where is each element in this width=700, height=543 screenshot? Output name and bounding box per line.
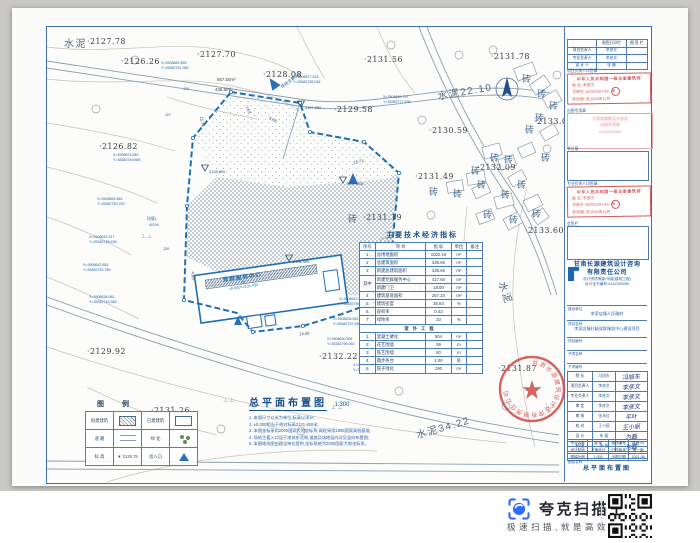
indicator-cell: 257.10 — [426, 291, 451, 299]
coordinate-callout: X=3908674.840Y=35382749.865 — [113, 153, 140, 162]
legend-symbol-hatch — [114, 412, 142, 430]
spot-elevation: ·2132.22 — [319, 352, 358, 361]
titleblock-cell: 李彦文 — [597, 55, 626, 63]
indicator-cell — [467, 300, 483, 308]
spot-elevation: ·2131.78 — [491, 52, 530, 61]
indicator-cell: 总用地面积 — [375, 251, 426, 259]
indicator-cell: 1 — [360, 332, 376, 340]
titleblock-cell — [626, 55, 647, 63]
handwritten-signature: 李彦文 — [622, 381, 641, 391]
indicator-cell: 26.93 — [426, 300, 451, 308]
elevation-marker-label: 2129.825 — [347, 181, 363, 186]
signature-cell: 审 定 — [568, 402, 593, 412]
indicator-cell: % — [451, 316, 467, 324]
area-label: 436.9m² — [215, 87, 231, 92]
indicator-cell — [467, 308, 483, 316]
indicator-cell — [467, 291, 483, 299]
meta-cell: 图档编号 — [608, 440, 628, 447]
indicator-cell: m — [451, 340, 467, 348]
meta-cell: 设计阶段 — [568, 447, 588, 454]
indicator-cell: 4 — [360, 357, 376, 365]
indicator-cell: m² — [451, 251, 467, 259]
indicator-cell: 4 — [360, 291, 376, 299]
signature-cell: 专业负责人 — [568, 392, 593, 402]
elevation-marker-label: 2127.850 — [305, 105, 321, 110]
company-seal: 甘肃长源建筑设计咨询有限责任公司 — [496, 353, 568, 430]
indicator-cell: 处 — [451, 357, 467, 365]
indicator-cell: 室外工程 — [360, 324, 483, 332]
grass-symbol: ⊥⊥ — [223, 397, 235, 404]
indicator-cell: 院子绿化 — [375, 365, 426, 373]
indicator-cell — [451, 308, 467, 316]
legend-symbol-rect — [170, 412, 198, 430]
titleblock-header-cell: 图签打印栏 — [597, 40, 626, 48]
handwritten-signature: 冯旭东 — [622, 371, 641, 381]
faint-stamp-line: A162005085 — [570, 129, 650, 135]
brick-label: 砖 — [348, 212, 357, 225]
plan-title-block: 总平面布置图 1:300 1. 本图尺寸以米为单位,标高以米计;2. ±0.00… — [249, 393, 444, 448]
point-code-label: 挡墙1 — [147, 217, 157, 222]
legend-label: 绿 化 — [142, 430, 170, 448]
spot-elevation: ·2126.26 — [121, 57, 160, 66]
signature-cell: 李彦文 — [616, 402, 648, 412]
legend-symbol-entry — [170, 448, 198, 466]
indicator-cell: 0.43 — [426, 308, 451, 316]
title-block: 图签打印栏图 签 栏项目负责人李彦文专业负责人李彦文设 计 人张 巍 项目负责人… — [564, 27, 651, 482]
indicator-cell — [467, 275, 483, 283]
titleblock-cell — [626, 47, 647, 55]
qr-code — [608, 494, 652, 543]
titleblock-top-table: 图签打印栏图 签 栏项目负责人李彦文专业负责人李彦文设 计 人张 巍 — [567, 39, 648, 70]
drawing-sheet: 场地主要入口 党群服务中心 1F ±0.000=2131.450 ·2127.7… — [12, 8, 688, 486]
indicators-title: 主要技术经济指标 — [359, 230, 485, 240]
coordinate-callout: X=3908642.851Y=35382743.789 — [83, 263, 110, 272]
point-code-label: 4/S04 — [149, 223, 159, 227]
signature-cell: 院 长 — [568, 372, 593, 382]
meta-cell: 归档版本 — [608, 447, 628, 454]
indicator-cell: 混凝土硬化 — [375, 332, 426, 340]
field-3: 项目编号 — [567, 337, 647, 350]
footer-divider — [601, 497, 602, 533]
company-name-2: 有限责任公司 — [567, 269, 647, 277]
indicator-cell: m² — [451, 332, 467, 340]
coordinate-callout: X=3908638.081Y=35382743.366 — [89, 295, 116, 304]
indicator-cell: 7 — [360, 316, 376, 324]
indicator-cell: m² — [451, 275, 467, 283]
signature-cell: 王小丽 — [593, 422, 616, 432]
indicator-cell — [467, 267, 483, 275]
legend-symbol-elev: ▼ 2128.75 — [114, 448, 142, 466]
stamp-line: 中华人民共和国一级注册建筑师 — [569, 75, 649, 82]
countersign-box — [567, 226, 649, 260]
meta-cell: 建施-01 — [629, 440, 648, 447]
indicator-cell: 序号 — [360, 243, 376, 251]
brick-label: 砖 — [483, 208, 492, 221]
indicator-cell: m² — [451, 365, 467, 373]
signature-cell: 李彦文 — [593, 382, 616, 392]
handwritten-signature: 王小丽 — [622, 421, 641, 431]
signature-cell: 校 对 — [568, 422, 593, 432]
spot-elevation: ·2130.59 — [429, 126, 468, 135]
mini-seal-icon: 章 — [611, 200, 620, 209]
point-code-label: J26 — [163, 247, 169, 251]
indicator-cell: 60 — [426, 349, 451, 357]
spot-elevation: ·2133.60 — [525, 226, 564, 235]
coordinate-callout: X=3908630.654Y=35382796.062 — [327, 337, 354, 346]
plan-note: 5. 本图地形图由建设单位提供,坐标系统为2000国家大地坐标系。 — [249, 441, 444, 448]
brick-label: 砖 — [517, 178, 526, 191]
legend-label: 标 高 — [86, 448, 114, 466]
signature-cell: 张永红 — [593, 412, 616, 422]
indicator-cell: m² — [451, 267, 467, 275]
handwritten-signature: 平叶 — [625, 412, 638, 422]
field-label: 子项编号 — [568, 365, 582, 370]
brick-label: 砖 — [504, 153, 513, 166]
signature-cell: 冯旭东 — [593, 372, 616, 382]
dimension-label: 14.49 — [299, 331, 310, 337]
titleblock-header-cell: 图 签 栏 — [626, 40, 647, 48]
indicator-cell: 其中 — [360, 275, 376, 291]
signature-cell: 李彦文 — [616, 392, 648, 402]
indicator-cell: 5 — [360, 365, 376, 373]
meta-cell: 第一版 — [629, 447, 648, 454]
area-label: 567.50m² — [217, 77, 236, 82]
indicator-cell: 建筑密度 — [375, 300, 426, 308]
legend-label: 道 路 — [86, 430, 114, 448]
indicator-cell: 435.60 — [426, 259, 451, 267]
guard-house-2 — [265, 315, 276, 326]
indicator-cell: 18.00 — [426, 283, 451, 291]
unit-stamp-box — [567, 151, 649, 181]
meta-cell: 方案设计 — [588, 447, 608, 454]
indicator-cell: 417.60 — [426, 275, 451, 283]
field-1: 建设单位李家店镇人民政府 — [567, 305, 647, 320]
signature-cell: 李彦文 — [616, 382, 648, 392]
legend-block: 图 例 拟建建筑已建建筑道 路绿 化标 高▼ 2128.75总入口 — [85, 399, 198, 466]
field-4: 子项名称 — [567, 350, 647, 363]
coordinate-callout: X=3908677.215Y=35382766.044 — [293, 75, 320, 84]
brick-label: 砖 — [509, 213, 518, 226]
signature-cell: 审 核 — [568, 412, 593, 422]
sheet-name-row: 图纸名称 总平面布置图 — [567, 458, 647, 472]
elevation-marker-label: 2128.800 — [209, 169, 225, 174]
sheet-name-label: 图纸名称 — [568, 460, 582, 465]
building-annex — [323, 270, 340, 292]
signature-cell: 王小丽 — [616, 422, 648, 432]
brick-label: 砖 — [525, 123, 534, 136]
indicator-cell — [467, 349, 483, 357]
indicator-cell: 新建总建筑面积 — [375, 267, 426, 275]
titleblock-cell: 项目负责人 — [568, 47, 597, 55]
indicator-cell: 6 — [360, 308, 376, 316]
indicator-cell: 3 — [360, 349, 376, 357]
brick-label: 砖 — [501, 188, 510, 201]
spot-elevation: ·2131.56 — [364, 55, 403, 64]
brick-label: 砖 — [477, 178, 486, 191]
spot-elevation: ·2129.58 — [334, 105, 373, 114]
handwritten-signature: 李彦文 — [622, 401, 641, 411]
indicator-cell — [467, 316, 483, 324]
legend-label: 已建建筑 — [142, 412, 170, 430]
plan-scale: 1:300 — [334, 402, 349, 408]
indicator-cell: 花艺围墙 — [375, 340, 426, 348]
coordinate-callout: X=3908652.882Y=35382750.750 — [97, 197, 124, 206]
legend-label: 总入口 — [142, 448, 170, 466]
coordinate-callout: X=3908669.757Y=35382777.536 — [383, 95, 410, 104]
stamp-line: 有效期: 至2026年11月 — [569, 208, 649, 214]
plot-stamp-box: 甘肃省勘察设计协会出图专用章A162005085 — [567, 113, 653, 149]
meta-cell: 建 筑 — [588, 440, 608, 447]
company-cert: 设计证书编号:A162005085 — [567, 282, 647, 288]
indicator-cell: 435.60 — [426, 267, 451, 275]
spot-elevation: ·2131.49 — [415, 172, 454, 181]
indicator-cell: 绿地率 — [375, 316, 426, 324]
indicator-cell — [467, 357, 483, 365]
meta-cell: 专业名称 — [568, 440, 588, 447]
spot-elevation: ·2129.92 — [87, 347, 126, 356]
indicator-cell: 1022.19 — [426, 251, 451, 259]
handwritten-signature: 李彦文 — [622, 391, 641, 401]
brick-label: 砖 — [532, 207, 541, 220]
indicator-cell — [467, 332, 483, 340]
indicator-cell — [467, 259, 483, 267]
point-code-label: J20 — [183, 87, 189, 91]
indicator-cell: 新建党群服务中心 — [375, 275, 426, 283]
coordinate-callout: X=3908682.855Y=35382751.380 — [161, 61, 188, 70]
indicators-table: 序号项 目指 标单位备注1总用地面积1022.19m²2总建筑面积435.60m… — [359, 242, 483, 374]
architect-stamp-2: 中华人民共和国一级注册建筑师姓 名: 李彦文注册号: 6200229-016章有… — [567, 185, 651, 217]
point-code-label: J27 — [165, 113, 171, 117]
indicator-cell: 3 — [360, 267, 376, 275]
elevation-marker-label: 2131.450 — [293, 259, 309, 264]
indicator-cell: m² — [451, 291, 467, 299]
drawing-frame: 场地主要入口 党群服务中心 1F ±0.000=2131.450 ·2127.7… — [46, 26, 652, 484]
titleblock-cell: 专业负责人 — [568, 55, 597, 63]
signature-cell: 平叶 — [616, 412, 648, 422]
architect-stamp-1: 中华人民共和国一级注册建筑师姓 名: 李彦文注册号: 6200229-016章有… — [567, 72, 651, 104]
indicator-cell: 1 — [360, 251, 376, 259]
brick-label: 砖 — [522, 72, 531, 85]
field-label: 项目名称 — [568, 322, 582, 327]
indicator-cell: 单位 — [451, 243, 467, 251]
stamp-line: 有效期: 至2026年11月 — [569, 95, 649, 101]
indicator-cell: 504 — [426, 332, 451, 340]
indicator-cell: 踏步条台 — [375, 357, 426, 365]
brick-label: 砖 — [429, 185, 438, 198]
indicator-cell: % — [451, 300, 467, 308]
legend-label: 拟建建筑 — [86, 412, 114, 430]
field-label: 子项名称 — [568, 352, 582, 357]
spot-elevation: ·2126.82 — [99, 142, 138, 151]
brick-label: 砖 — [535, 111, 544, 124]
mini-seal-icon: 章 — [611, 87, 620, 96]
indicator-cell: 铁艺围墙 — [375, 349, 426, 357]
brick-label: 砖 — [471, 164, 480, 177]
indicator-cell: 指 标 — [426, 243, 451, 251]
grass-symbol: ⊥⊥ — [141, 233, 153, 240]
dimension-label: 4.09 — [190, 271, 196, 280]
indicator-cell: m — [451, 349, 467, 357]
scanner-footer: 夸克扫描王 极速扫描,就是高效 — [0, 491, 700, 540]
indicator-cell: 总建筑面积 — [375, 259, 426, 267]
indicator-cell: 容积率 — [375, 308, 426, 316]
surface-label: 水泥 — [64, 35, 87, 50]
indicator-cell: 项 目 — [375, 243, 426, 251]
indicator-cell: 190 — [426, 365, 451, 373]
indicator-cell — [467, 365, 483, 373]
spot-elevation: ·2127.78 — [87, 37, 126, 46]
indicator-cell: 新建门卫 — [375, 283, 426, 291]
signature-cell: 冯旭东 — [616, 372, 648, 382]
coordinate-callout: X=3908643.217Y=35382748.638 — [89, 235, 116, 244]
indicator-cell: 2 — [360, 340, 376, 348]
indicator-cell: 33 — [426, 316, 451, 324]
legend-symbol-green — [170, 430, 198, 448]
indicator-cell — [467, 251, 483, 259]
signature-cell: 李彦文 — [593, 402, 616, 412]
indicator-cell: m² — [451, 259, 467, 267]
spot-elevation: ·2127.70 — [197, 50, 236, 59]
brick-label: 砖 — [541, 151, 550, 164]
plan-title: 总平面布置图 — [249, 398, 327, 411]
indicator-cell: 建筑基底面积 — [375, 291, 426, 299]
stamp-line: 中华人民共和国一级注册建筑师 — [569, 188, 649, 195]
indicator-cell: 备注 — [467, 243, 483, 251]
scanner-tagline: 极速扫描,就是高效 — [507, 521, 609, 533]
spot-elevation: ·2131.19 — [363, 213, 402, 222]
brick-label: 砖 — [490, 151, 499, 164]
legend-table: 拟建建筑已建建筑道 路绿 化标 高▼ 2128.75总入口 — [85, 411, 198, 466]
company-name-1: 甘肃长源建筑设计咨询 — [567, 261, 647, 269]
indicator-cell: 2 — [360, 259, 376, 267]
indicator-cell — [467, 283, 483, 291]
titleblock-header-cell — [568, 40, 597, 48]
plan-notes: 1. 本图尺寸以米为单位,标高以米计;2. ±0.000相当于绝对标高2131.… — [249, 415, 444, 448]
field-label: 建设单位 — [568, 307, 582, 312]
indicator-cell — [467, 340, 483, 348]
legend-symbol-road — [114, 430, 142, 448]
titleblock-cell: 李彦文 — [597, 47, 626, 55]
indicators-block: 主要技术经济指标 序号项 目指 标单位备注1总用地面积1022.19m²2总建筑… — [359, 230, 485, 374]
signature-cell: 李彦文 — [593, 392, 616, 402]
legend-title: 图 例 — [97, 399, 198, 409]
coordinate-callout: X=3908635.961Y=35382797.969 — [333, 317, 360, 326]
indicator-cell: m² — [451, 283, 467, 291]
brick-label: 砖 — [537, 87, 546, 100]
indicator-cell: 1.00 — [426, 357, 451, 365]
project-fields: 建设单位李家店镇人民政府项目名称李家店镇村级党群服务中心建设项目项目编号子项名称… — [567, 305, 647, 376]
indicator-cell: 5 — [360, 300, 376, 308]
field-label: 项目编号 — [568, 339, 582, 344]
indicator-cell: 39 — [426, 340, 451, 348]
design-company-block: 甘肃长源建筑设计咨询 有限责任公司 设计资质等级:甲级(建筑工程) 设计证书编号… — [567, 261, 647, 303]
brick-label: 砖 — [549, 99, 558, 112]
signature-cell: 项目负责人 — [568, 382, 593, 392]
field-2: 项目名称李家店镇村级党群服务中心建设项目 — [567, 320, 647, 337]
brick-label: 砖 — [453, 187, 462, 200]
